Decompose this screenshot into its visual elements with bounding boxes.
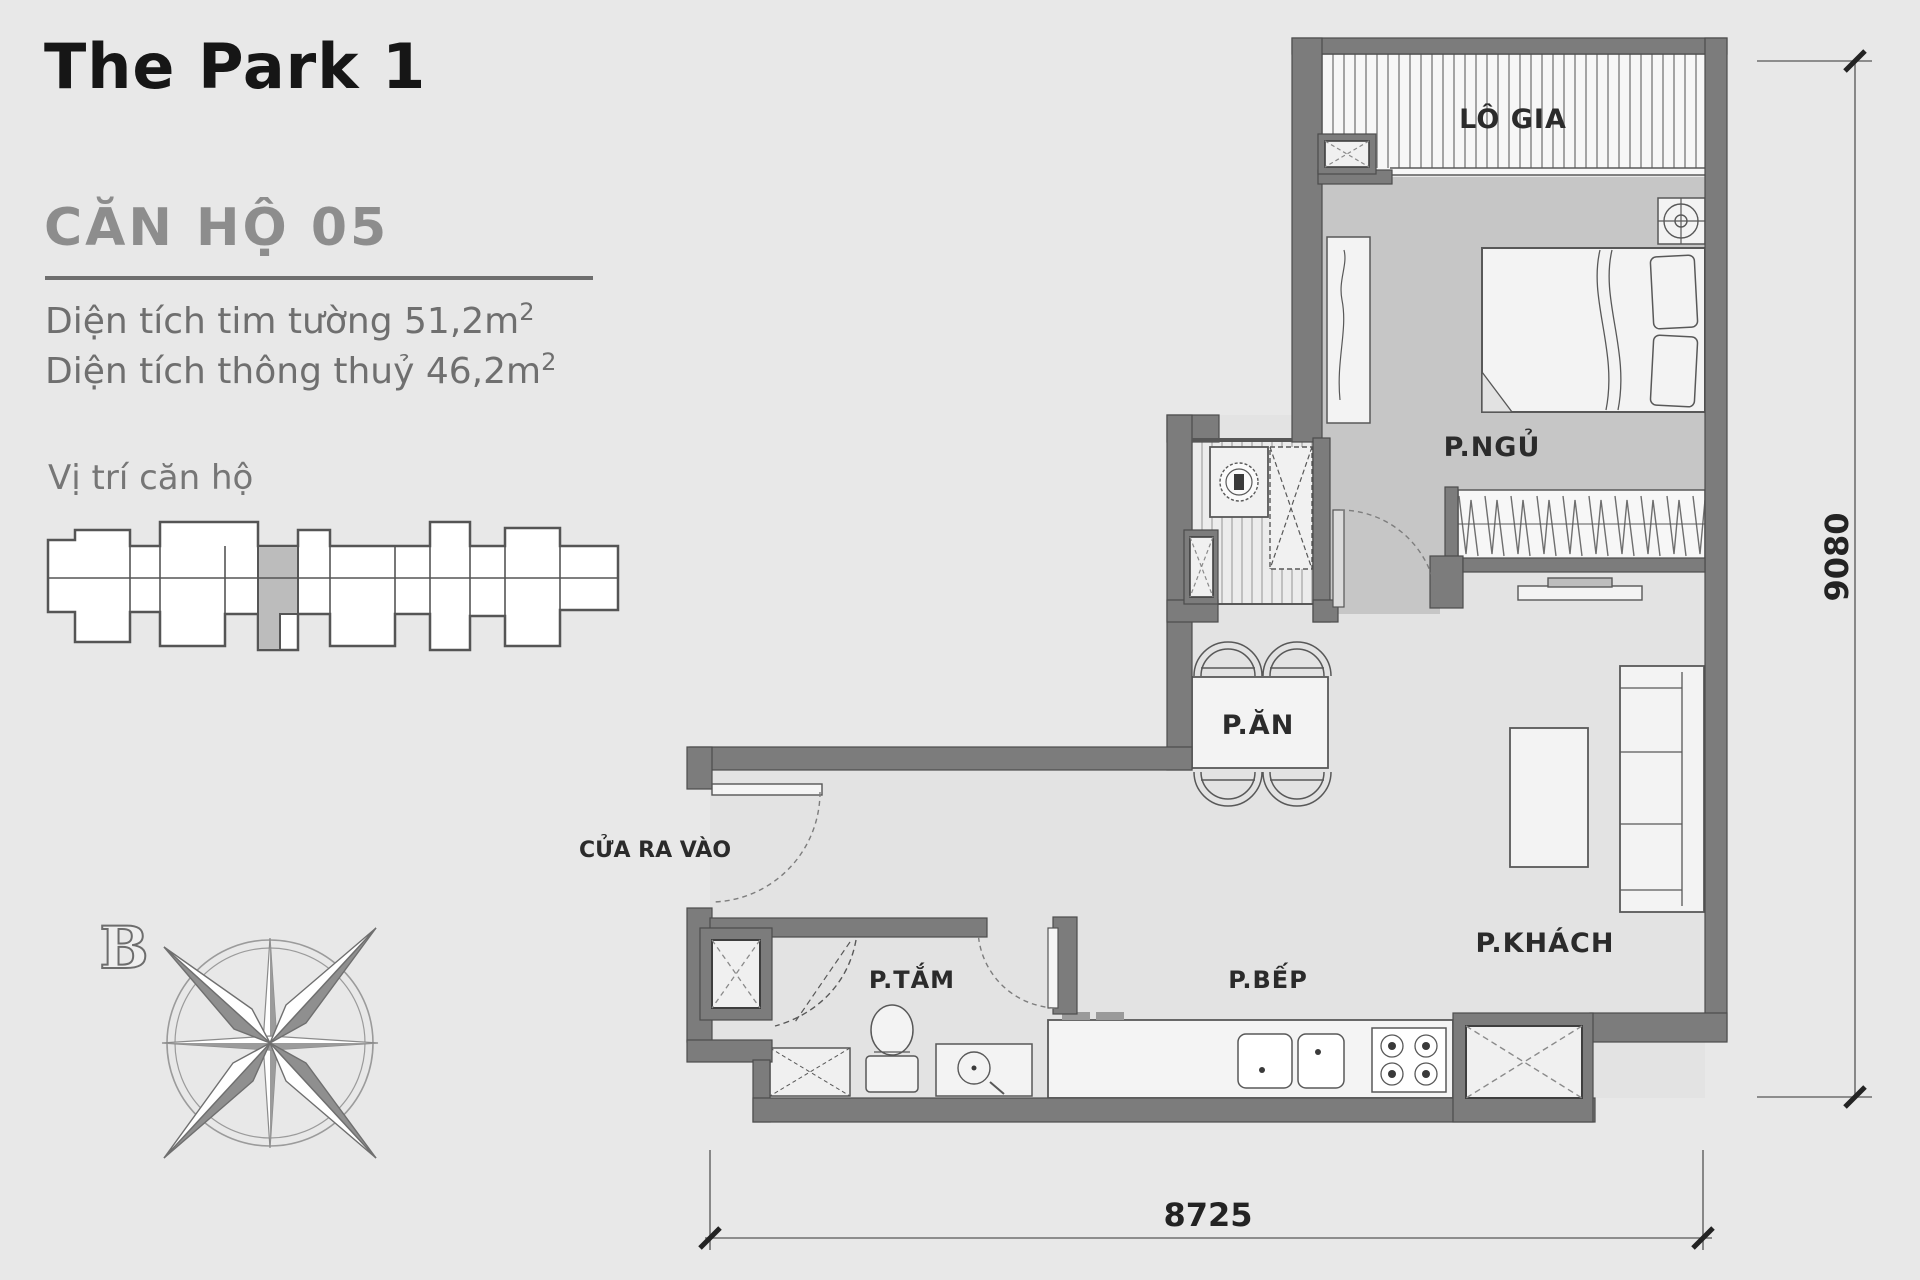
coffee-table [1510,728,1588,867]
building-locator [48,522,618,650]
sink [1238,1034,1292,1088]
closet [1458,490,1705,560]
label-loggia: LÔ GIA [1459,103,1567,135]
floorplan-page: The Park 1 CĂN HỘ 05 Diện tích tim tường… [0,0,1920,1280]
label-dining: P.ĂN [1222,709,1295,741]
label-kitchen: P.BẾP [1228,961,1308,994]
label-living: P.KHÁCH [1476,927,1615,959]
compass-north-label: B [99,914,148,982]
kitchen-counter [1048,1012,1453,1098]
dim-bottom: 8725 [1163,1196,1252,1234]
dim-right: 9080 [1818,512,1856,601]
compass: B [99,914,378,1158]
floor-plan-canvas: LÔ GIA P.NGỦ P.ĂN P.KHÁCH P.TẮM P.BẾP CỬ… [0,0,1920,1280]
label-entrance: CỬA RA VÀO [579,835,731,863]
stove [1372,1028,1446,1092]
wardrobe [1327,237,1370,423]
label-bedroom: P.NGỦ [1444,427,1541,463]
washbasin [936,1044,1032,1096]
sofa [1620,666,1704,912]
light-symbol [1658,198,1705,244]
bed [1482,248,1705,412]
label-bathroom: P.TẮM [869,961,955,994]
